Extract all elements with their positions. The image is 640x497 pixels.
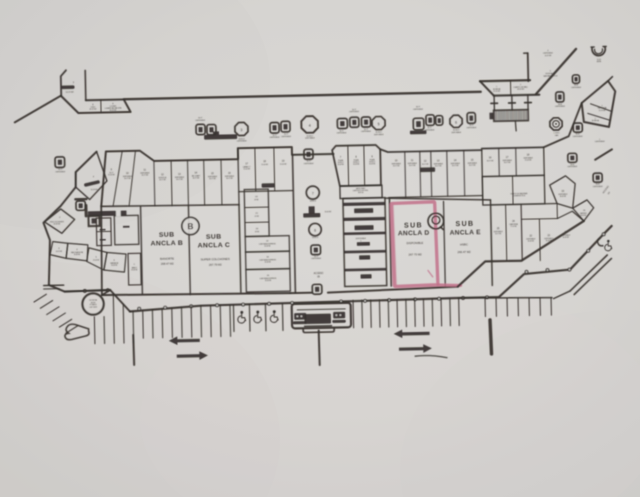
svg-text:DISPONIBLE: DISPONIBLE — [270, 137, 280, 139]
svg-text:14.29 M2: 14.29 M2 — [65, 92, 74, 94]
svg-text:DISPONIBLE: DISPONIBLE — [434, 163, 443, 165]
svg-text:DISPONIBLE: DISPONIBLE — [337, 132, 347, 134]
svg-text:30.17 M2: 30.17 M2 — [469, 165, 476, 167]
svg-text:DISPONIBLE: DISPONIBLE — [523, 157, 532, 159]
svg-text:DISPONIBLE: DISPONIBLE — [361, 131, 371, 133]
svg-text:DISPONIBLE: DISPONIBLE — [413, 109, 423, 111]
svg-text:SUB: SUB — [206, 234, 222, 241]
svg-text:38.40: 38.40 — [574, 85, 578, 87]
svg-text:267 73 M2: 267 73 M2 — [408, 252, 422, 256]
svg-text:DISPONIBLE: DISPONIBLE — [311, 258, 321, 260]
svg-text:30.17 M2: 30.17 M2 — [495, 233, 501, 235]
svg-text:30.06 M2: 30.06 M2 — [264, 246, 270, 248]
svg-text:29 M2: 29 M2 — [254, 199, 258, 201]
svg-text:38.40: 38.40 — [596, 184, 600, 186]
svg-text:4: 4 — [547, 50, 548, 52]
svg-text:KIOSCO: KIOSCO — [453, 130, 460, 132]
svg-text:DISPONIBLE EXPRESS: DISPONIBLE EXPRESS — [260, 278, 277, 280]
svg-text:30.17 M2: 30.17 M2 — [159, 179, 166, 181]
svg-text:ANCLA B: ANCLA B — [151, 240, 184, 248]
svg-text:HSBC: HSBC — [460, 242, 468, 246]
svg-text:6: 6 — [314, 229, 316, 233]
svg-text:34.77: 34.77 — [469, 125, 473, 127]
svg-text:31.04 M2: 31.04 M2 — [525, 160, 532, 162]
svg-text:56.63 M2: 56.63 M2 — [54, 223, 61, 225]
svg-text:DISPONIBLE: DISPONIBLE — [425, 129, 435, 131]
svg-text:30.17 M2: 30.17 M2 — [176, 179, 183, 181]
svg-text:DISPONIBLE: DISPONIBLE — [568, 166, 578, 168]
svg-text:30.17 M2: 30.17 M2 — [193, 178, 200, 180]
svg-text:84.99 M2: 84.99 M2 — [580, 215, 586, 217]
svg-text:34.77: 34.77 — [109, 172, 113, 174]
svg-text:29.08 M2: 29.08 M2 — [131, 269, 137, 271]
svg-text:1: 1 — [599, 139, 600, 141]
svg-text:39.08 M2: 39.08 M2 — [111, 265, 117, 267]
svg-text:KIOSCO: KIOSCO — [353, 162, 360, 164]
svg-text:DISPONIBLE: DISPONIBLE — [543, 53, 553, 55]
svg-text:DEPOSITO DE VIGIL.: DEPOSITO DE VIGIL. — [353, 190, 369, 192]
svg-text:30.17 M2: 30.17 M2 — [409, 165, 416, 167]
svg-text:84.26 M2: 84.26 M2 — [560, 196, 566, 198]
svg-text:41 M2: 41 M2 — [255, 216, 259, 218]
svg-text:30.17 M2: 30.17 M2 — [487, 160, 494, 162]
svg-text:LOCKER: LOCKER — [110, 106, 117, 108]
svg-text:34.04 M2: 34.04 M2 — [338, 164, 344, 166]
svg-text:38.40: 38.40 — [558, 104, 562, 106]
svg-text:50.29 M2: 50.29 M2 — [91, 189, 98, 191]
svg-text:DISPONIBLE: DISPONIBLE — [526, 238, 535, 240]
svg-text:DISPONIBLE: DISPONIBLE — [208, 176, 217, 178]
svg-text:29.20 M2: 29.20 M2 — [493, 91, 500, 93]
svg-text:34.04 M2: 34.04 M2 — [353, 164, 359, 166]
svg-text:69.47 M2: 69.47 M2 — [89, 109, 96, 111]
svg-text:31.04 M2: 31.04 M2 — [244, 168, 251, 170]
svg-text:268.47 M2: 268.47 M2 — [161, 262, 174, 266]
svg-text:KIOSCO: KIOSCO — [369, 161, 376, 163]
svg-text:34.77: 34.77 — [364, 129, 368, 131]
svg-text:4: 4 — [309, 124, 311, 128]
svg-text:KIOSCO: KIOSCO — [376, 132, 383, 134]
svg-text:34.77: 34.77 — [314, 256, 318, 258]
svg-text:SUB: SUB — [404, 222, 423, 229]
svg-text:DISPONIBLE: DISPONIBLE — [195, 120, 205, 122]
svg-text:SUB: SUB — [159, 232, 175, 239]
svg-text:5: 5 — [360, 240, 361, 242]
svg-text:31.04 M2: 31.04 M2 — [261, 164, 268, 166]
svg-text:34.77: 34.77 — [427, 127, 431, 129]
svg-text:DISPONIBLE: DISPONIBLE — [593, 186, 603, 188]
svg-text:3: 3 — [602, 106, 603, 108]
svg-text:DISPONIBLE: DISPONIBLE — [56, 171, 66, 173]
svg-text:30.06 M2: 30.06 M2 — [265, 262, 271, 264]
svg-text:5: 5 — [550, 71, 551, 73]
svg-text:DISPONIBLE: DISPONIBLE — [558, 194, 567, 196]
svg-text:SUPER COLCHONES: SUPER COLCHONES — [201, 257, 230, 262]
svg-text:6: 6 — [455, 120, 457, 124]
svg-text:DISPONIBLE: DISPONIBLE — [374, 134, 384, 136]
svg-text:7: 7 — [312, 192, 314, 196]
svg-text:14.21 M2: 14.21 M2 — [545, 55, 552, 57]
svg-text:DISPONIBLE: DISPONIBLE — [237, 141, 247, 143]
svg-text:30.06 M2: 30.06 M2 — [265, 280, 271, 282]
svg-text:CONSERJE 29.40: CONSERJE 29.40 — [513, 195, 526, 197]
svg-text:KIOSCO: KIOSCO — [307, 136, 314, 138]
svg-text:30.17 M2: 30.17 M2 — [142, 175, 149, 177]
svg-text:30.17 M2: 30.17 M2 — [226, 178, 233, 180]
svg-text:28.20 M2: 28.20 M2 — [517, 89, 524, 91]
svg-text:DISPONIBLE: DISPONIBLE — [123, 176, 132, 178]
svg-text:267.79 M2: 267.79 M2 — [209, 263, 222, 267]
svg-text:ACCESO: ACCESO — [314, 272, 324, 275]
svg-text:DISPONIBLE EXPRESS: DISPONIBLE EXPRESS — [259, 259, 276, 261]
svg-text:DISPONIBLE: DISPONIBLE — [140, 172, 149, 174]
svg-text:DISPONIBLE: DISPONIBLE — [595, 141, 605, 143]
svg-text:DISPONIBLE: DISPONIBLE — [304, 163, 314, 165]
svg-text:DISPONIBLE: DISPONIBLE — [467, 127, 477, 129]
svg-text:DISPONIBLE: DISPONIBLE — [451, 163, 460, 165]
svg-text:28 M2: 28 M2 — [255, 231, 259, 233]
svg-text:ANCLA C: ANCLA C — [198, 242, 231, 250]
svg-text:38.40: 38.40 — [576, 134, 580, 136]
svg-text:29.44 M2: 29.44 M2 — [93, 260, 99, 262]
svg-text:30.06 M2: 30.06 M2 — [528, 241, 534, 243]
svg-text:34.77: 34.77 — [198, 118, 202, 120]
svg-text:34.77: 34.77 — [284, 134, 288, 136]
svg-text:84.03 M2: 84.03 M2 — [110, 110, 117, 112]
svg-text:34.77: 34.77 — [58, 169, 62, 171]
svg-text:DISPONIBLE: DISPONIBLE — [573, 136, 583, 138]
svg-text:3: 3 — [240, 128, 242, 132]
svg-text:KIOSCO: KIOSCO — [338, 162, 345, 164]
svg-text:30.17 M2: 30.17 M2 — [422, 164, 429, 166]
svg-text:30.17 M2: 30.17 M2 — [504, 162, 511, 164]
svg-text:1 OXXO: 1 OXXO — [554, 133, 561, 135]
svg-text:DISPONIBLE: DISPONIBLE — [406, 241, 423, 245]
svg-text:ANCLA D: ANCLA D — [398, 230, 430, 238]
svg-text:34.04 M2: 34.04 M2 — [369, 164, 375, 166]
svg-text:77.21 M2: 77.21 M2 — [510, 226, 516, 228]
svg-text:31.04 M2: 31.04 M2 — [280, 163, 287, 165]
svg-text:KIOSCO: KIOSCO — [310, 201, 317, 203]
svg-text:30.17 M2: 30.17 M2 — [209, 178, 216, 180]
svg-text:30.17 M2: 30.17 M2 — [452, 165, 459, 167]
svg-text:5: 5 — [378, 122, 380, 126]
svg-text:DISPONIBLE: DISPONIBLE — [349, 111, 359, 113]
svg-text:38.40: 38.40 — [570, 164, 574, 166]
svg-text:2: 2 — [595, 118, 596, 120]
svg-text:DISPONIBLE EXPRESS: DISPONIBLE EXPRESS — [259, 243, 276, 245]
svg-text:B 29.04: B 29.04 — [358, 192, 364, 194]
svg-text:KIOSCO: KIOSCO — [239, 138, 246, 140]
svg-text:DISPONIBLE: DISPONIBLE — [225, 176, 234, 178]
svg-text:DISPONIBLE: DISPONIBLE — [392, 163, 401, 165]
svg-text:266.47 M2: 266.47 M2 — [457, 250, 471, 254]
svg-text:ANCLA E: ANCLA E — [450, 229, 482, 237]
svg-text:DISPONIBLE: DISPONIBLE — [555, 106, 565, 108]
svg-text:KIOSCO: KIOSCO — [312, 237, 319, 239]
svg-text:DISPONIBLE: DISPONIBLE — [494, 231, 503, 233]
svg-text:BANORTE: BANORTE — [160, 257, 174, 261]
svg-text:DISPONIBLE: DISPONIBLE — [468, 162, 477, 164]
svg-text:30.06 M2: 30.06 M2 — [563, 237, 569, 239]
svg-text:DISPONIBLE: DISPONIBLE — [451, 132, 461, 134]
svg-text:34.77: 34.77 — [339, 130, 343, 132]
svg-text:DISPONIBLE: DISPONIBLE — [175, 177, 184, 179]
svg-text:39.08 M2: 39.08 M2 — [74, 254, 80, 256]
svg-text:30.17 M2: 30.17 M2 — [435, 165, 442, 167]
svg-text:30.17 M2: 30.17 M2 — [393, 165, 400, 167]
svg-text:34.77: 34.77 — [416, 106, 420, 108]
svg-text:DISPONIBLE: DISPONIBLE — [503, 160, 512, 162]
svg-text:DISPONIBLE: DISPONIBLE — [305, 138, 315, 140]
svg-text:34.77: 34.77 — [352, 109, 356, 111]
svg-text:14.64: 14.64 — [597, 59, 601, 61]
svg-text:SUB: SUB — [455, 221, 474, 228]
svg-text:12.74 M2: 12.74 M2 — [599, 110, 606, 112]
svg-text:32.40 M2: 32.40 M2 — [325, 211, 332, 213]
svg-text:B: B — [187, 221, 193, 231]
svg-text:34.77: 34.77 — [273, 135, 277, 137]
svg-text:31.04 M2: 31.04 M2 — [108, 174, 115, 176]
svg-text:DISPONIBLE: DISPONIBLE — [281, 136, 291, 138]
svg-text:34.77: 34.77 — [307, 161, 311, 163]
svg-text:DISPONIBLE: DISPONIBLE — [571, 87, 581, 89]
svg-text:30.17 M2: 30.17 M2 — [124, 178, 131, 180]
svg-text:PSN COLCHONES: PSN COLCHONES — [50, 221, 64, 223]
svg-text:DISPONIBLE: DISPONIBLE — [408, 163, 417, 165]
svg-text:24.57 M2: 24.57 M2 — [56, 251, 62, 253]
